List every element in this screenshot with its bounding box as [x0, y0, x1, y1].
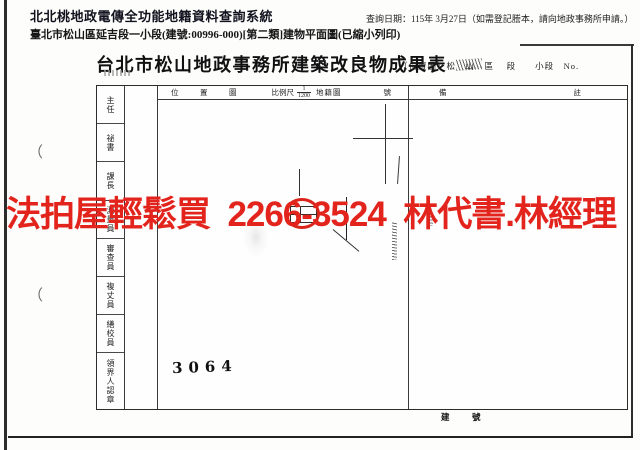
document-line: 臺北市松山區延吉段一小段(建號:00996-000)[第二類]建物平面圖(已縮小…: [30, 26, 400, 42]
remark-label-left: 備: [439, 87, 447, 98]
building-number-label: 建 號: [441, 411, 488, 423]
scale-label: 比例尺: [272, 87, 295, 98]
sheet-border-bottom: [8, 436, 633, 438]
survey-result-table: 主任 祕書 課長 測量員 審查員 複丈員 繕校員 領界人認章 位 置 圖 比例尺…: [96, 85, 628, 410]
handwriting-artifact: [456, 58, 483, 71]
punch-hole-mark: （: [28, 141, 43, 162]
survey-cross-mark: [385, 104, 386, 184]
signature-cell: 審查員: [97, 239, 124, 277]
illegible-note-artifact: [104, 70, 130, 76]
watermark-text: 法拍屋輕鬆買 2266-3524 林代書.林經理: [6, 194, 640, 235]
number-label: 號: [384, 87, 392, 98]
plan-header: 位 置 圖 比例尺 1 1200 地籍圖 號: [158, 86, 408, 99]
seal-column: [125, 86, 158, 409]
signature-cell: 繕校員: [97, 315, 124, 353]
survey-line: [397, 156, 400, 184]
signature-cell: 複丈員: [97, 277, 124, 315]
survey-line: [299, 169, 300, 196]
signature-cell: 主任: [97, 86, 124, 124]
query-system-page: 北北桃地政電傳全功能地籍資料查詢系統 查詢日期：115年 3月27日（如需登記謄…: [0, 0, 640, 450]
plan-and-remark-area: 位 置 圖 比例尺 1 1200 地籍圖 號 備 註: [158, 86, 627, 409]
cadastral-map-label: 地籍圖: [316, 87, 342, 98]
signature-label-column: 主任 祕書 課長 測量員 審查員 複丈員 繕校員 領界人認章: [97, 86, 125, 409]
remark-label-right: 註: [574, 87, 582, 98]
table-body-row: 3064: [158, 100, 627, 409]
sheet-border-top: [520, 44, 634, 46]
remark-area: [408, 100, 627, 409]
query-date: 查詢日期：115年 3月27日（如需登記謄本，請向地政事務所申請。）: [366, 12, 633, 25]
survey-cross-mark: [353, 138, 413, 139]
document-title: 台北市松山地政事務所建築改良物成果表: [96, 51, 447, 77]
sheet-border-right: [631, 44, 633, 438]
table-header-row: 位 置 圖 比例尺 1 1200 地籍圖 號 備 註: [158, 86, 627, 100]
location-map-plan: 3064: [158, 100, 408, 409]
document-title-suffix: （位置圖）松 山 區 段 小段 No.: [399, 60, 579, 72]
location-map-label: 位 置 圖: [171, 87, 244, 98]
scale-denominator: 1200: [297, 92, 311, 99]
remark-header: 備 註: [408, 86, 627, 99]
punch-hole-mark: （: [28, 284, 43, 305]
signature-cell: 祕書: [97, 124, 124, 162]
scale-fraction: 1 1200: [297, 86, 311, 100]
system-title: 北北桃地政電傳全功能地籍資料查詢系統: [30, 6, 273, 25]
signature-cell: 領界人認章: [97, 353, 124, 409]
plan-stamp-number: 3064: [172, 357, 238, 377]
